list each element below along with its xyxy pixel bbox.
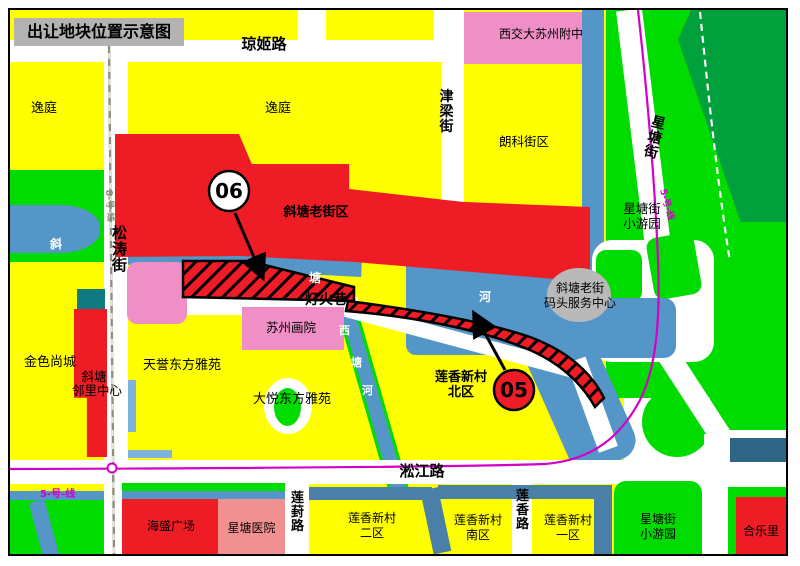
label-nc-line1: 斜塘 (76, 370, 112, 384)
label-river-xietang-2: 塘 (309, 272, 321, 285)
label-road-lianfeng: 莲葑路 (289, 492, 306, 534)
label-nc-line2: 邻里中心 (66, 384, 128, 398)
wharf-gray-ellipse (547, 268, 611, 322)
label-road-songjiang: 淞江路 (390, 463, 454, 479)
block-pink-west (127, 262, 187, 324)
label-lx1-line1: 莲香新村 (530, 514, 606, 527)
label-river-xitang-3: 河 (362, 385, 373, 397)
label-heleli: 合乐里 (736, 525, 786, 538)
canal-small-a (127, 380, 136, 432)
map-canvas: 06 05 5-号-线 5-号-线 8-号-线 出让地块位置示意图 琼姬路 逸庭… (0, 0, 800, 566)
label-lxs-line2: 南区 (440, 529, 516, 542)
label-river-xitang-1: 西 (339, 325, 350, 337)
label-wharf-line2: 码头服务中心 (514, 297, 646, 310)
label-hospital: 星塘医院 (220, 522, 283, 535)
label-park-south-line1: 星塘街 (622, 513, 694, 526)
label-park-south-line2: 小游园 (622, 528, 694, 541)
block-teal-west (77, 289, 105, 312)
label-langke: 朗科街区 (489, 135, 559, 149)
label-road-jinliang: 津梁街 (438, 90, 455, 135)
label-river-xietang-1: 斜 (50, 238, 62, 251)
strip-green-sw-blocks (122, 483, 285, 491)
map-frame: 06 05 5-号-线 5-号-线 8-号-线 出让地块位置示意图 琼姬路 逸庭… (8, 8, 788, 556)
label-road-qiongji: 琼姬路 (220, 36, 308, 52)
label-river-xietang-3: 河 (479, 291, 491, 304)
label-haisheng: 海盛广场 (138, 520, 204, 533)
label-yiting-east: 逸庭 (256, 102, 300, 116)
label-road-denghuoxiang: 灯火巷 (293, 293, 359, 308)
label-jinse: 金色尚城 (18, 356, 82, 370)
label-lx-north-line2: 北区 (427, 386, 495, 400)
label-park-north-line1: 星塘街 (614, 202, 670, 216)
label-yiting-west: 逸庭 (22, 102, 66, 116)
label-park-north-line2: 小游园 (614, 217, 670, 231)
road-southeast-vertical (704, 434, 730, 554)
label-lx-north-line1: 莲香新村 (427, 371, 495, 385)
label-lxs-line1: 莲香新村 (440, 514, 516, 527)
label-road-lianxiang: 莲香路 (514, 490, 531, 532)
label-river-xitang-2: 塘 (351, 357, 362, 369)
label-lx2-line2: 二区 (332, 527, 412, 540)
label-dayue: 大悦东方雅苑 (245, 393, 339, 407)
block-slate-southeast (730, 438, 786, 462)
label-lx2-line1: 莲香新村 (332, 512, 412, 525)
label-academy: 苏州画院 (246, 321, 336, 335)
page-title: 出让地块位置示意图 (14, 18, 184, 46)
label-road-songtao: 松涛街 (111, 225, 128, 274)
label-lx1-line2: 一区 (530, 529, 606, 542)
label-old-street: 斜塘老街区 (272, 206, 360, 220)
strip-blue-lx2 (309, 487, 432, 500)
road-school-stub (434, 10, 464, 44)
label-tianyu: 天誉东方雅苑 (135, 359, 229, 373)
label-wharf-line1: 斜塘老街 (528, 282, 632, 295)
canal-small-b (122, 450, 172, 458)
label-school: 西交大苏州附中 (489, 28, 593, 41)
